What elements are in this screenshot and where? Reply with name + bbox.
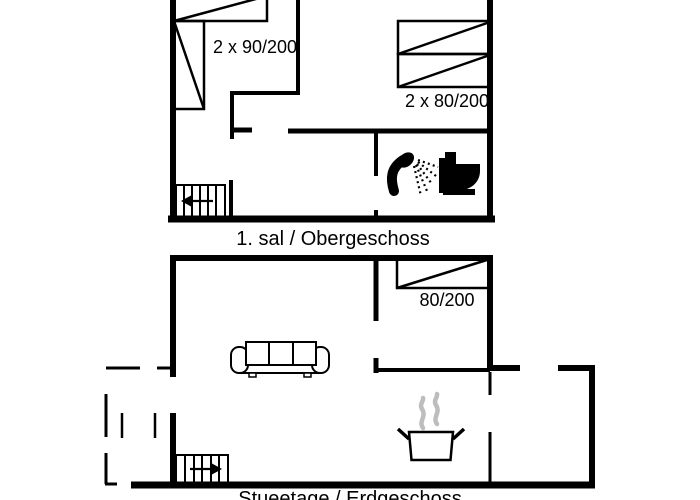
- bed-diagonal: [398, 55, 490, 87]
- shower-spray: [414, 160, 438, 196]
- cooking-pot-steam-icon: [398, 394, 464, 460]
- spray-line: [417, 164, 432, 184]
- stairs-arrow-head: [181, 196, 191, 207]
- lower-interior-walls: [374, 258, 490, 373]
- sofa-icon: [231, 342, 329, 377]
- pot-handle: [398, 429, 409, 439]
- spray-line: [418, 160, 438, 167]
- sofa-foot: [304, 373, 311, 377]
- sofa-foot: [249, 373, 256, 377]
- bed-diagonal: [397, 259, 490, 288]
- annex-walls: [487, 365, 595, 487]
- bed-diagonal: [174, 21, 204, 109]
- floorplan-canvas: 2 x 90/200 2 x 80/200 1. sal / Obergesch…: [0, 0, 700, 500]
- bed-size-label: 2 x 80/200: [405, 91, 489, 111]
- staircase-arrow-right-icon: [176, 455, 228, 484]
- upper-floor-label: 1. sal / Obergeschoss: [236, 228, 429, 250]
- single-bed-icon: [397, 258, 490, 288]
- steam-wisp: [435, 394, 438, 424]
- stairs-arrow-head: [212, 464, 222, 475]
- toilet-tank: [439, 158, 456, 193]
- toilet-icon: [439, 152, 480, 195]
- toilet-bowl: [455, 164, 480, 190]
- shower-icon: [392, 149, 438, 196]
- twin-bed-icon: [398, 21, 490, 87]
- bed-diagonal: [398, 22, 490, 54]
- bed-size-label: 80/200: [419, 290, 474, 310]
- pot-handle: [453, 429, 464, 439]
- lower-floor-plan: 80/200 Stueetage / Erdgeschoss: [105, 255, 595, 500]
- dashed-terrace-outline: [105, 368, 172, 484]
- toilet-base: [443, 189, 475, 195]
- upper-floor-plan: 2 x 90/200 2 x 80/200 1. sal / Obergesch…: [168, 0, 495, 250]
- bed-diagonal: [174, 0, 267, 21]
- steam-wisp: [421, 398, 424, 428]
- staircase-arrow-left-icon: [176, 185, 225, 218]
- lower-outer-walls: [131, 255, 595, 487]
- bed-size-label: 2 x 90/200: [213, 37, 297, 57]
- pot-body: [409, 432, 453, 460]
- toilet-lid: [445, 152, 456, 159]
- lower-floor-label: Stueetage / Erdgeschoss: [238, 488, 461, 500]
- sofa-cushions: [246, 342, 316, 365]
- floorplan-image: 2 x 90/200 2 x 80/200 1. sal / Obergesch…: [0, 0, 700, 500]
